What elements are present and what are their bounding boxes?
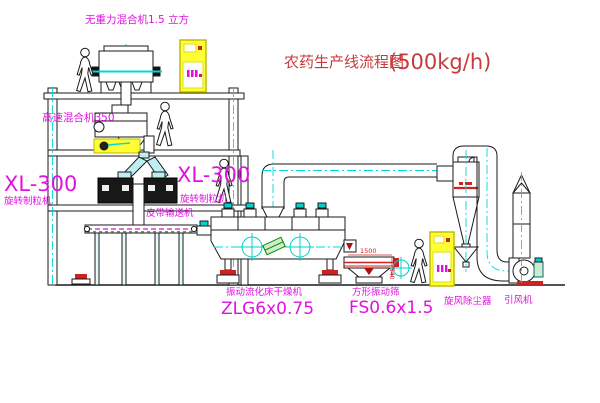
label-dryer-model: ZLG6x0.75 — [221, 299, 314, 319]
label-granulator-right-name: 旋转制粒机 — [180, 193, 228, 205]
belt-conveyor — [84, 221, 211, 285]
vibrating-screen — [344, 240, 412, 283]
label-granulator-left-name: 旋转制粒机 — [4, 195, 52, 207]
label-screen-name: 方形振动筛 — [352, 286, 400, 298]
granulator-discharge-pipe — [133, 184, 144, 225]
control-cabinet-1 — [180, 40, 206, 92]
label-granulator-left-model: XL-300 — [4, 172, 77, 196]
label-cyclone: 旋风除尘器 — [444, 295, 492, 307]
worker-figure — [77, 48, 93, 92]
label-gravity-mixer: 无重力混合机1.5 立方 — [85, 13, 189, 26]
dim-screen-height: 540 — [388, 268, 395, 280]
worker-figure — [157, 102, 173, 146]
label-screen-model: FS0.6x1.5 — [349, 298, 433, 318]
worker-figure — [411, 239, 427, 283]
granulator-right — [144, 178, 177, 203]
granulator-left — [98, 178, 133, 203]
pesticide-line-diagram: 农药生产线流程图 (500kg/h) 无重力混合机1.5 立方 高速混合机350… — [0, 0, 600, 403]
label-belt-conveyor: 皮带输送机 — [146, 207, 194, 219]
control-cabinet-2 — [430, 232, 454, 286]
fluid-bed-dryer — [211, 203, 345, 283]
label-high-speed-mixer: 高速混合机350 — [42, 111, 115, 124]
cad-flowsheet-canvas: 农药生产线流程图 (500kg/h) 无重力混合机1.5 立方 高速混合机350… — [0, 0, 600, 403]
induced-draft-fan — [509, 172, 543, 285]
gravity-mixer — [90, 44, 162, 112]
pallet-jack — [72, 274, 90, 284]
diagram-title-capacity: (500kg/h) — [389, 50, 491, 74]
label-dryer-name: 振动流化床干燥机 — [226, 286, 303, 298]
label-fan: 引风机 — [504, 294, 533, 306]
dim-screen-width: 1500 — [360, 247, 377, 255]
exhaust-duct — [262, 150, 450, 212]
label-granulator-right-model: XL-300 — [177, 163, 250, 187]
diagram-title: 农药生产线流程图 — [284, 53, 404, 71]
